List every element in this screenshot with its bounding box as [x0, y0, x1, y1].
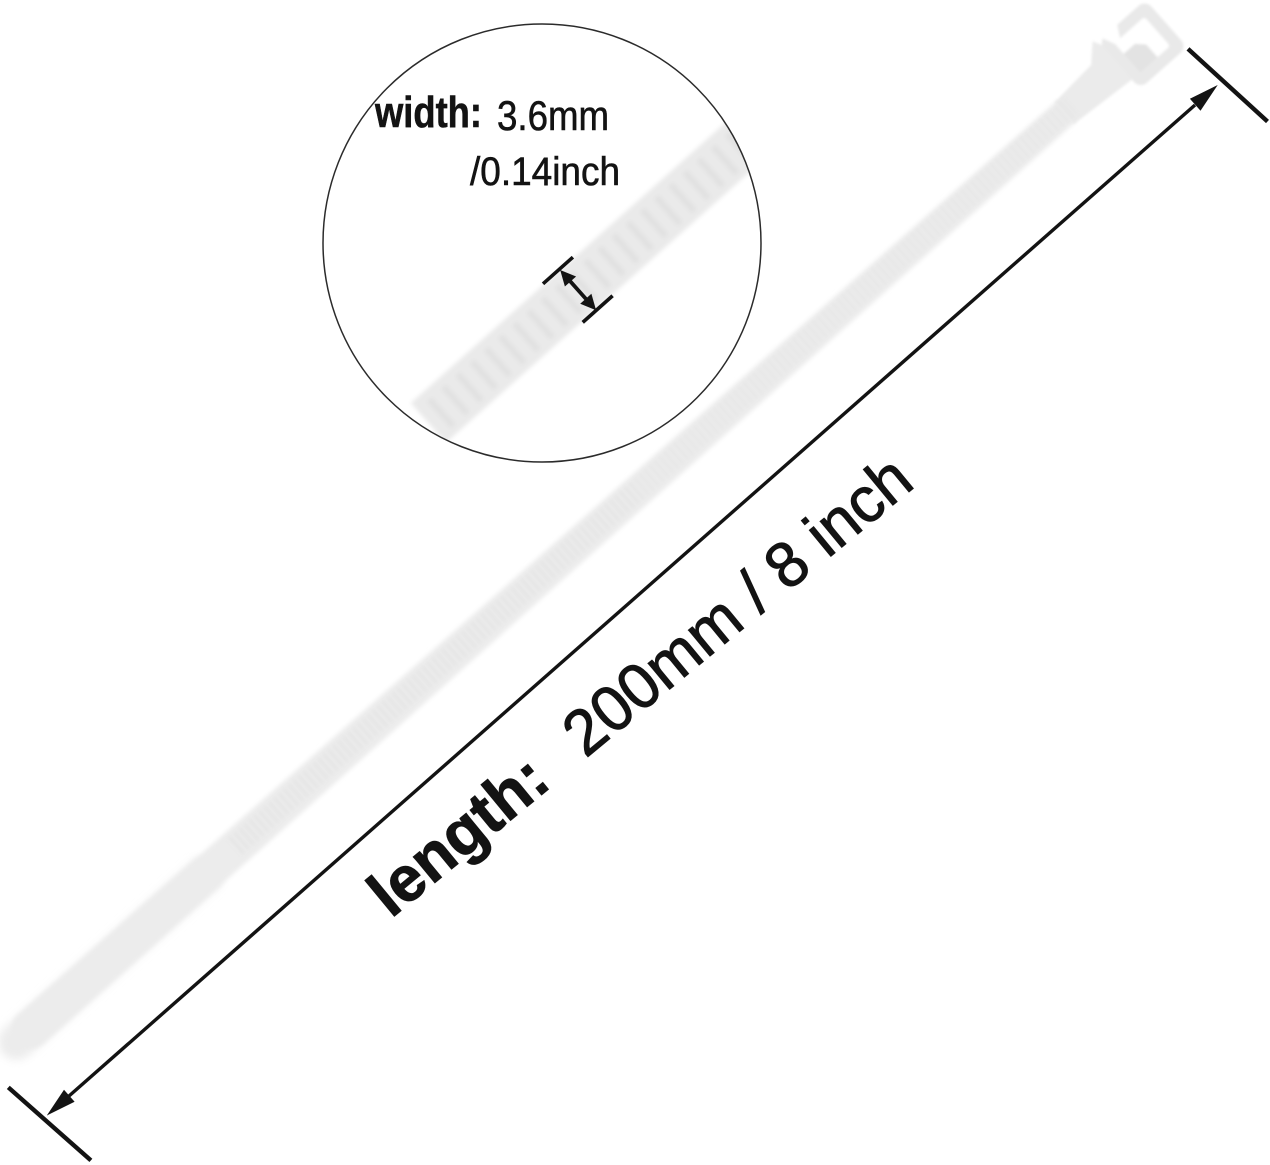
svg-text:width:: width:: [374, 88, 482, 137]
svg-text:/0.14inch: /0.14inch: [470, 150, 620, 194]
svg-text:3.6mm: 3.6mm: [497, 92, 609, 139]
